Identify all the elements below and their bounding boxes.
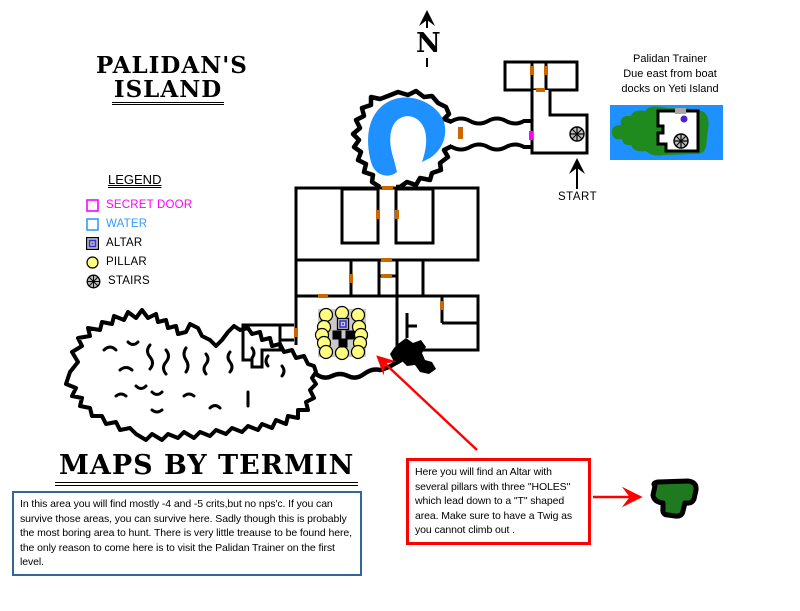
altar-and-pillars [316, 307, 368, 360]
stairs-marker [674, 134, 688, 148]
main-hall [296, 188, 478, 260]
door-marker [536, 88, 545, 92]
minimap-dock [675, 108, 686, 114]
trainer-note-line1: Palidan Trainer [605, 52, 735, 67]
map-title-line2: ISLAND [112, 78, 224, 105]
pillar [336, 347, 349, 360]
altar-note-text: Here you will find an Altar with several… [415, 466, 572, 536]
door-marker [530, 66, 534, 75]
palidans-island-map-page: PALIDAN'S ISLAND N Palidan Trainer Due e… [0, 0, 800, 611]
area-note-text: In this area you will find mostly -4 and… [20, 498, 352, 568]
pillar [352, 346, 365, 359]
pillar [320, 309, 333, 322]
water-lake [368, 97, 445, 175]
legend-item-altar: ALTAR [86, 235, 142, 251]
door-marker [395, 210, 399, 219]
legend-item-water: WATER [86, 216, 147, 232]
start-label: START [558, 191, 597, 203]
secret-doors [529, 131, 533, 140]
hole [333, 331, 342, 340]
water-icon [86, 218, 99, 231]
door-marker [381, 274, 392, 278]
area-note-box: In this area you will find mostly -4 and… [12, 491, 362, 576]
door-marker [458, 127, 463, 139]
door-marker [349, 274, 353, 283]
door-marker [544, 66, 548, 75]
credit-title: MAPS BY TERMIN [55, 450, 358, 486]
hole [339, 339, 348, 348]
trainer-minimap [610, 105, 723, 160]
door-marker [318, 294, 328, 298]
door-marker [382, 186, 393, 190]
t-shaped-area [653, 481, 696, 516]
minimap-trainer-dot [681, 116, 688, 123]
secret-door-icon [86, 199, 99, 212]
top-building [505, 62, 577, 90]
map-title: PALIDAN'S ISLAND [96, 54, 240, 105]
door-marker [381, 258, 392, 262]
south-band [296, 260, 423, 296]
altar-icon [86, 237, 99, 250]
legend-item-secret-door: SECRET DOOR [86, 197, 192, 213]
altar-note-box: Here you will find an Altar with several… [406, 458, 591, 545]
trainer-note: Palidan Trainer Due east from boat docks… [605, 52, 735, 97]
lake-cave-wall-lower [396, 146, 452, 187]
trainer-note-line3: docks on Yeti Island [605, 82, 735, 97]
pillar [320, 346, 333, 359]
pillar [352, 309, 365, 322]
pillar [336, 307, 349, 320]
start-room [532, 90, 587, 153]
trainer-note-line2: Due east from boat [605, 67, 735, 82]
compass-n-label: N [416, 28, 441, 59]
secret-door-marker [529, 131, 533, 140]
door-marker [294, 328, 298, 337]
hole [346, 331, 355, 340]
stairs-icon [86, 274, 101, 289]
pillar-icon [86, 256, 99, 269]
stairs-marker [570, 127, 584, 141]
map-title-line1: PALIDAN'S [96, 54, 240, 78]
lake-corridor-wall-top [452, 119, 531, 124]
cave-passage-wall [316, 356, 406, 378]
legend-item-stairs: STAIRS [86, 273, 150, 289]
legend-title: LEGEND [108, 172, 161, 187]
lake-corridor-wall-bottom [452, 145, 531, 150]
legend-item-pillar: PILLAR [86, 254, 147, 270]
door-marker [376, 210, 380, 219]
door-marker [440, 301, 444, 310]
